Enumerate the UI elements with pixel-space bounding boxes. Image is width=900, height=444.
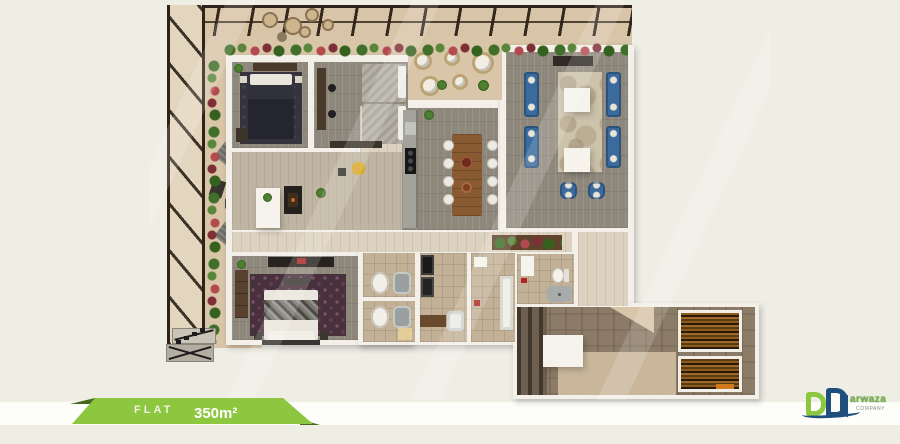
planter-column-left [206, 58, 222, 344]
bed-pillows [250, 74, 292, 85]
pergola-left [167, 5, 205, 347]
logo-swoosh [802, 407, 860, 419]
toilet [552, 268, 564, 283]
headboard [262, 340, 320, 345]
washing-machine [421, 255, 434, 275]
fireplace-ember [291, 198, 295, 202]
elevator-door [678, 310, 742, 352]
coffee-table [564, 148, 590, 172]
bathtub [500, 276, 513, 330]
floor-plan-scene: FLAT 350m² arwaza COMPANY [0, 0, 900, 444]
bed-pillows [268, 331, 314, 340]
bed-pillows [398, 66, 406, 98]
potted-plant [478, 80, 489, 91]
logo-brand-text: arwaza [850, 394, 886, 405]
pergola-top-beam [183, 21, 632, 23]
bench [284, 278, 310, 285]
elevator-light [716, 384, 734, 389]
desk-chair [328, 84, 336, 92]
hallway-right-floor [578, 232, 628, 306]
sink-vanity [371, 306, 389, 328]
dining-chair [443, 140, 454, 151]
nightstand [295, 76, 302, 83]
nightstand [320, 332, 328, 340]
planter-row-top [222, 42, 628, 58]
bed [248, 85, 294, 139]
kitchen-sink [405, 122, 416, 135]
armchair [588, 182, 605, 199]
shower-drain [558, 293, 561, 296]
dining-chair [443, 194, 454, 205]
egg-chair [452, 74, 468, 90]
wicker-chair [262, 12, 278, 28]
logo-company-text: COMPANY [856, 406, 885, 412]
dining-chair [443, 158, 454, 169]
cabinet [521, 256, 534, 276]
potted-plant [424, 110, 434, 120]
sofa [524, 126, 539, 168]
dining-chair [487, 140, 498, 151]
wardrobe [235, 270, 248, 318]
dining-chair [443, 176, 454, 187]
wicker-table [299, 26, 311, 38]
laundry-counter [420, 315, 446, 327]
nightstand [254, 332, 262, 340]
dining-chair [487, 158, 498, 169]
bed-blanket [264, 300, 318, 320]
serving-platter [460, 156, 473, 169]
potted-plant [237, 260, 246, 269]
side-table [338, 168, 346, 176]
corridor-planter-box [492, 235, 562, 250]
nightstand [240, 76, 247, 83]
potted-plant [263, 193, 272, 202]
wicker-stool [277, 32, 287, 42]
sofa [524, 72, 539, 117]
company-logo: arwaza COMPANY [800, 385, 896, 427]
area-value: 350m² [194, 405, 237, 422]
lobby-table [543, 335, 583, 367]
wardrobe [253, 63, 297, 71]
cooktop [405, 148, 416, 174]
flat-label: FLAT [134, 404, 173, 416]
area-banner: FLAT 350m² [72, 398, 313, 424]
console [330, 141, 382, 148]
shower [393, 272, 411, 294]
dryer [421, 277, 434, 297]
dining-chair [487, 176, 498, 187]
sink-vanity [371, 272, 389, 294]
sofa [606, 72, 621, 117]
armchair [560, 182, 577, 199]
sofa [606, 126, 621, 168]
dining-chair [487, 194, 498, 205]
floor-light [398, 328, 412, 340]
shower [393, 306, 411, 328]
serving-platter [461, 182, 472, 193]
toilet-tank [564, 269, 569, 282]
potted-plant [437, 80, 447, 90]
dresser [236, 128, 248, 142]
desk [317, 68, 326, 130]
sink [474, 257, 487, 267]
bath-accessory [521, 278, 527, 283]
dining-table [452, 134, 482, 216]
bath-accessory [474, 300, 480, 306]
wicker-chair [322, 19, 334, 31]
wicker-chair [305, 8, 319, 22]
desk-chair [328, 110, 336, 118]
accent-chair [352, 162, 365, 175]
tv-screen [297, 258, 306, 264]
bathtub [447, 311, 464, 331]
coffee-table [564, 88, 590, 112]
potted-plant [316, 188, 326, 198]
